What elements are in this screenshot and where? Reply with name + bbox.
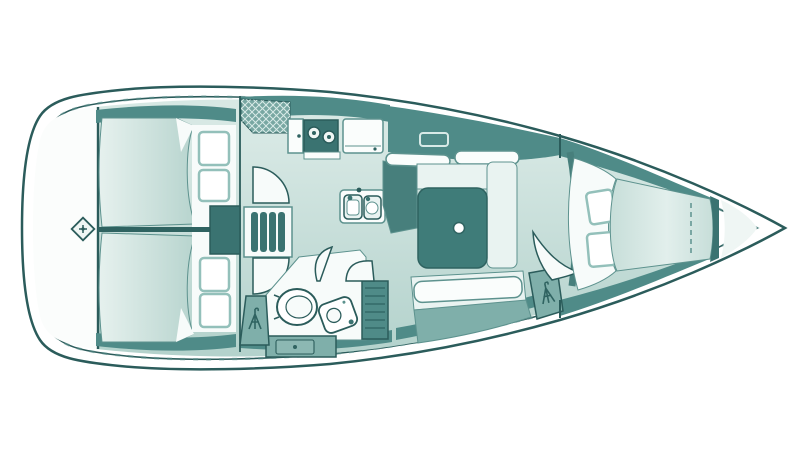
refrigerator xyxy=(343,119,383,153)
cabin-divider xyxy=(98,227,210,232)
step-rung xyxy=(260,212,267,252)
basin-inner xyxy=(366,202,378,214)
dinette-cushion-side xyxy=(487,162,517,268)
stern-locker xyxy=(33,107,98,349)
step-rung xyxy=(269,212,276,252)
step-rung xyxy=(278,212,285,252)
burner-center xyxy=(312,131,316,135)
yacht-floor-plan xyxy=(0,0,800,460)
stove xyxy=(304,120,340,159)
floor-plan-canvas xyxy=(0,0,800,460)
companionway-steps xyxy=(244,207,292,257)
cabinet-knob xyxy=(297,134,301,138)
pillow xyxy=(199,170,229,201)
galley-hatch-locker xyxy=(241,99,290,133)
basin-inner xyxy=(347,200,359,215)
burner-center xyxy=(327,135,331,139)
louver-locker xyxy=(362,281,388,339)
dinette-end-cabinet xyxy=(383,161,417,233)
sink-unit xyxy=(340,188,385,223)
fridge-latch xyxy=(373,147,376,150)
pillow xyxy=(200,294,230,327)
hanging-locker-aft xyxy=(240,296,269,345)
pillow xyxy=(200,258,229,291)
engine-box xyxy=(210,206,240,254)
step-rung xyxy=(251,212,258,252)
faucet xyxy=(357,188,362,193)
drawer-knob xyxy=(293,345,297,349)
faucet xyxy=(348,196,353,201)
salon-table xyxy=(418,188,487,268)
faucet xyxy=(366,197,370,201)
mast-post xyxy=(454,223,465,234)
stove-counter xyxy=(304,152,340,159)
pillow xyxy=(199,132,229,165)
vanity-drawer xyxy=(266,336,336,357)
dinette-cushion-top xyxy=(417,164,488,189)
